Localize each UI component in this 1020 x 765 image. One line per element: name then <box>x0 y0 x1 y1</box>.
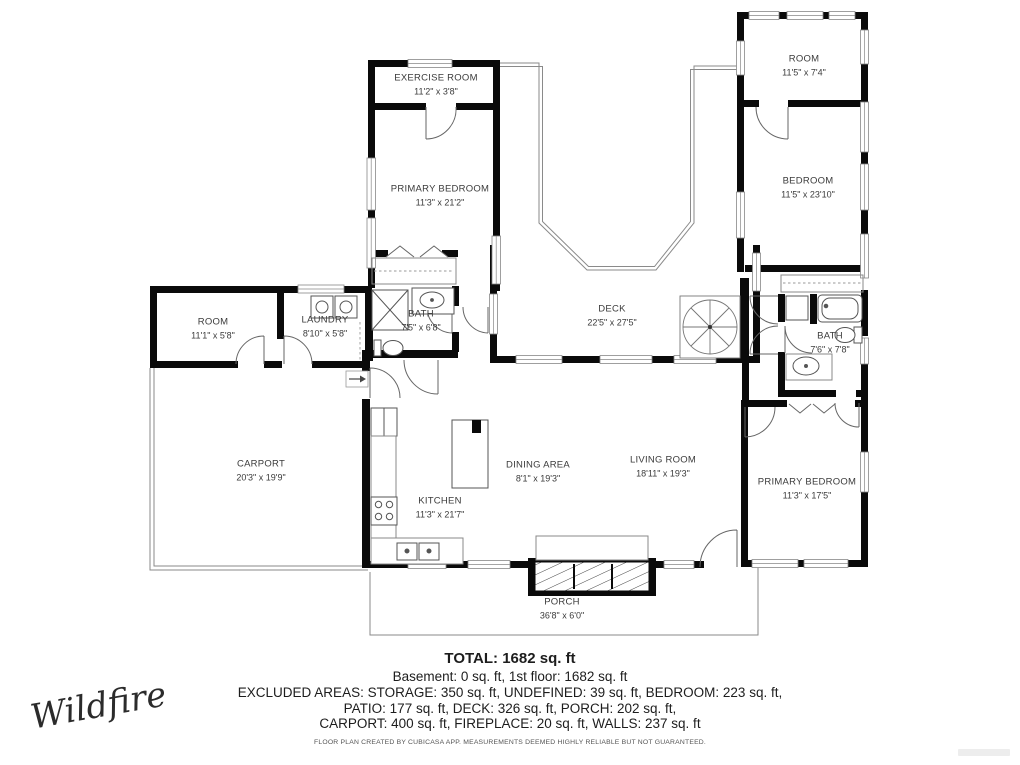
room-label-room-top-right: ROOM 11'5" x 7'4" <box>782 54 826 79</box>
room-dims: 7'6" x 7'8" <box>810 343 849 355</box>
room-dims: 8'1" x 19'3" <box>506 472 570 484</box>
room-name: PORCH <box>540 597 584 610</box>
room-dims: 11'1" x 5'8" <box>191 329 235 341</box>
room-name: DECK <box>587 304 636 317</box>
spiral-staircase <box>680 296 740 358</box>
room-label-kitchen: KITCHEN 11'3" x 21'7" <box>416 496 465 521</box>
room-name: BATH <box>810 331 849 344</box>
floor-plan-page: EXERCISE ROOM 11'2" x 3'8" PRIMARY BEDRO… <box>0 0 1020 765</box>
room-label-bath-right: BATH 7'6" x 7'8" <box>810 331 849 356</box>
room-dims: 8'10" x 5'8" <box>302 327 349 339</box>
porch-deck <box>535 562 649 591</box>
room-dims: 11'3" x 21'7" <box>416 508 465 520</box>
room-name: KITCHEN <box>416 496 465 509</box>
room-label-carport: CARPORT 20'3" x 19'9" <box>236 459 285 484</box>
total-area: TOTAL: 1682 sq. ft <box>0 650 1020 667</box>
room-label-laundry: LAUNDRY 8'10" x 5'8" <box>302 315 349 340</box>
watermark <box>958 749 1010 756</box>
room-label-dining-area: DINING AREA 8'1" x 19'3" <box>506 460 570 485</box>
room-label-exercise-room: EXERCISE ROOM 11'2" x 3'8" <box>394 73 478 98</box>
room-name: LAUNDRY <box>302 315 349 328</box>
room-name: LIVING ROOM <box>630 455 696 468</box>
room-dims: 11'3" x 17'5" <box>758 489 856 501</box>
room-label-living-room: LIVING ROOM 18'11" x 19'3" <box>630 455 696 480</box>
room-name: CARPORT <box>236 459 285 472</box>
summary-line-4: CARPORT: 400 sq. ft, FIREPLACE: 20 sq. f… <box>0 716 1020 732</box>
room-dims: 20'3" x 19'9" <box>236 471 285 483</box>
room-label-room-left: ROOM 11'1" x 5'8" <box>191 317 235 342</box>
room-dims: 11'5" x 7'4" <box>782 66 826 78</box>
entry-arrow <box>346 371 368 387</box>
fixtures <box>311 288 862 564</box>
room-name: BATH <box>401 309 440 322</box>
room-name: EXERCISE ROOM <box>394 73 478 86</box>
room-dims: 7'5" x 6'8" <box>401 321 440 333</box>
room-dims: 11'2" x 3'8" <box>394 85 478 97</box>
room-label-bedroom-right: BEDROOM 11'5" x 23'10" <box>781 176 835 201</box>
patio-outline <box>500 63 737 270</box>
room-dims: 36'8" x 6'0" <box>540 609 584 621</box>
room-label-porch: PORCH 36'8" x 6'0" <box>540 597 584 622</box>
room-name: ROOM <box>191 317 235 330</box>
room-label-bath-center: BATH 7'5" x 6'8" <box>401 309 440 334</box>
disclaimer-text: FLOOR PLAN CREATED BY CUBICASA APP. MEAS… <box>0 739 1020 746</box>
room-name: ROOM <box>782 54 826 67</box>
room-name: DINING AREA <box>506 460 570 473</box>
room-name: PRIMARY BEDROOM <box>391 184 489 197</box>
room-dims: 11'3" x 21'2" <box>391 196 489 208</box>
room-label-primary-bedroom-lower: PRIMARY BEDROOM 11'3" x 17'5" <box>758 477 856 502</box>
room-name: BEDROOM <box>781 176 835 189</box>
room-name: PRIMARY BEDROOM <box>758 477 856 490</box>
walls <box>150 12 868 596</box>
room-dims: 11'5" x 23'10" <box>781 188 835 200</box>
room-label-primary-bedroom-upper: PRIMARY BEDROOM 11'3" x 21'2" <box>391 184 489 209</box>
room-dims: 22'5" x 27'5" <box>587 316 636 328</box>
room-label-deck: DECK 22'5" x 27'5" <box>587 304 636 329</box>
room-dims: 18'11" x 19'3" <box>630 467 696 479</box>
